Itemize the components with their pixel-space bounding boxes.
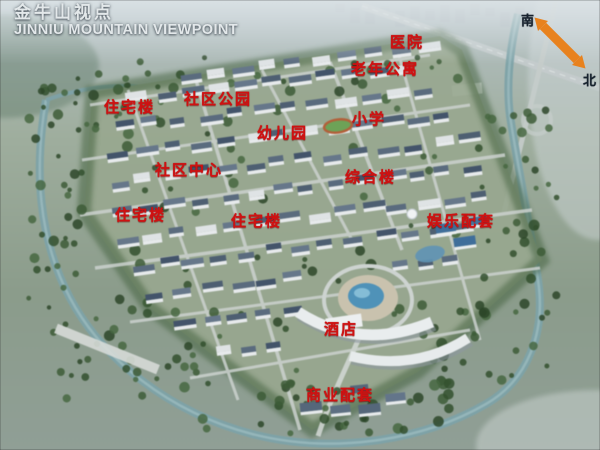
map-label-community-center: 社区中心 — [155, 159, 223, 180]
title-chinese: 金牛山视点 — [14, 3, 238, 22]
map-label-senior-apartments: 老年公寓 — [351, 58, 419, 79]
map-label-primary-school: 小学 — [352, 108, 386, 129]
map-label-kindergarten: 幼儿园 — [257, 122, 308, 143]
compass-north-label: 北 — [583, 70, 596, 89]
map-label-residential-1: 住宅楼 — [104, 96, 155, 117]
map-label-residential-3: 住宅楼 — [231, 210, 282, 231]
compass-south-label: 南 — [521, 10, 534, 29]
title-english: JINNIU MOUNTAIN VIEWPOINT — [14, 22, 238, 39]
map-label-residential-2: 住宅楼 — [115, 204, 166, 225]
map-label-hotel: 酒店 — [324, 318, 358, 339]
map-label-mixed-use-building: 综合楼 — [345, 166, 396, 187]
map-label-hospital: 医院 — [390, 31, 424, 52]
map-label-commercial: 商业配套 — [306, 384, 374, 405]
viewpoint-rendering-page: 金牛山视点 JINNIU MOUNTAIN VIEWPOINT 南 北 医院老年… — [0, 0, 600, 450]
compass: 南 北 — [505, 0, 600, 100]
map-label-entertainment: 娱乐配套 — [427, 210, 495, 231]
map-label-community-park: 社区公园 — [184, 88, 252, 109]
page-title: 金牛山视点 JINNIU MOUNTAIN VIEWPOINT — [14, 3, 238, 39]
